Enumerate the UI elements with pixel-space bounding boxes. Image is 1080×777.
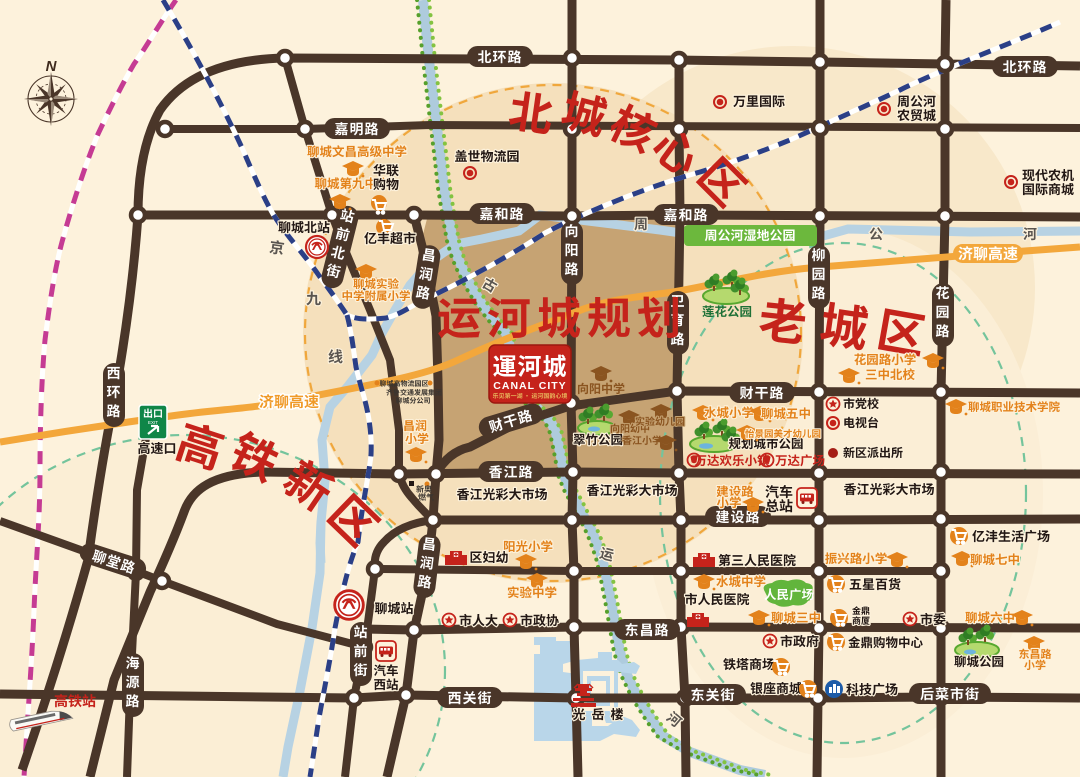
svg-text:CANAL CITY: CANAL CITY: [493, 380, 566, 392]
svg-text:N: N: [46, 58, 58, 75]
svg-text:EXIT: EXIT: [148, 420, 158, 425]
